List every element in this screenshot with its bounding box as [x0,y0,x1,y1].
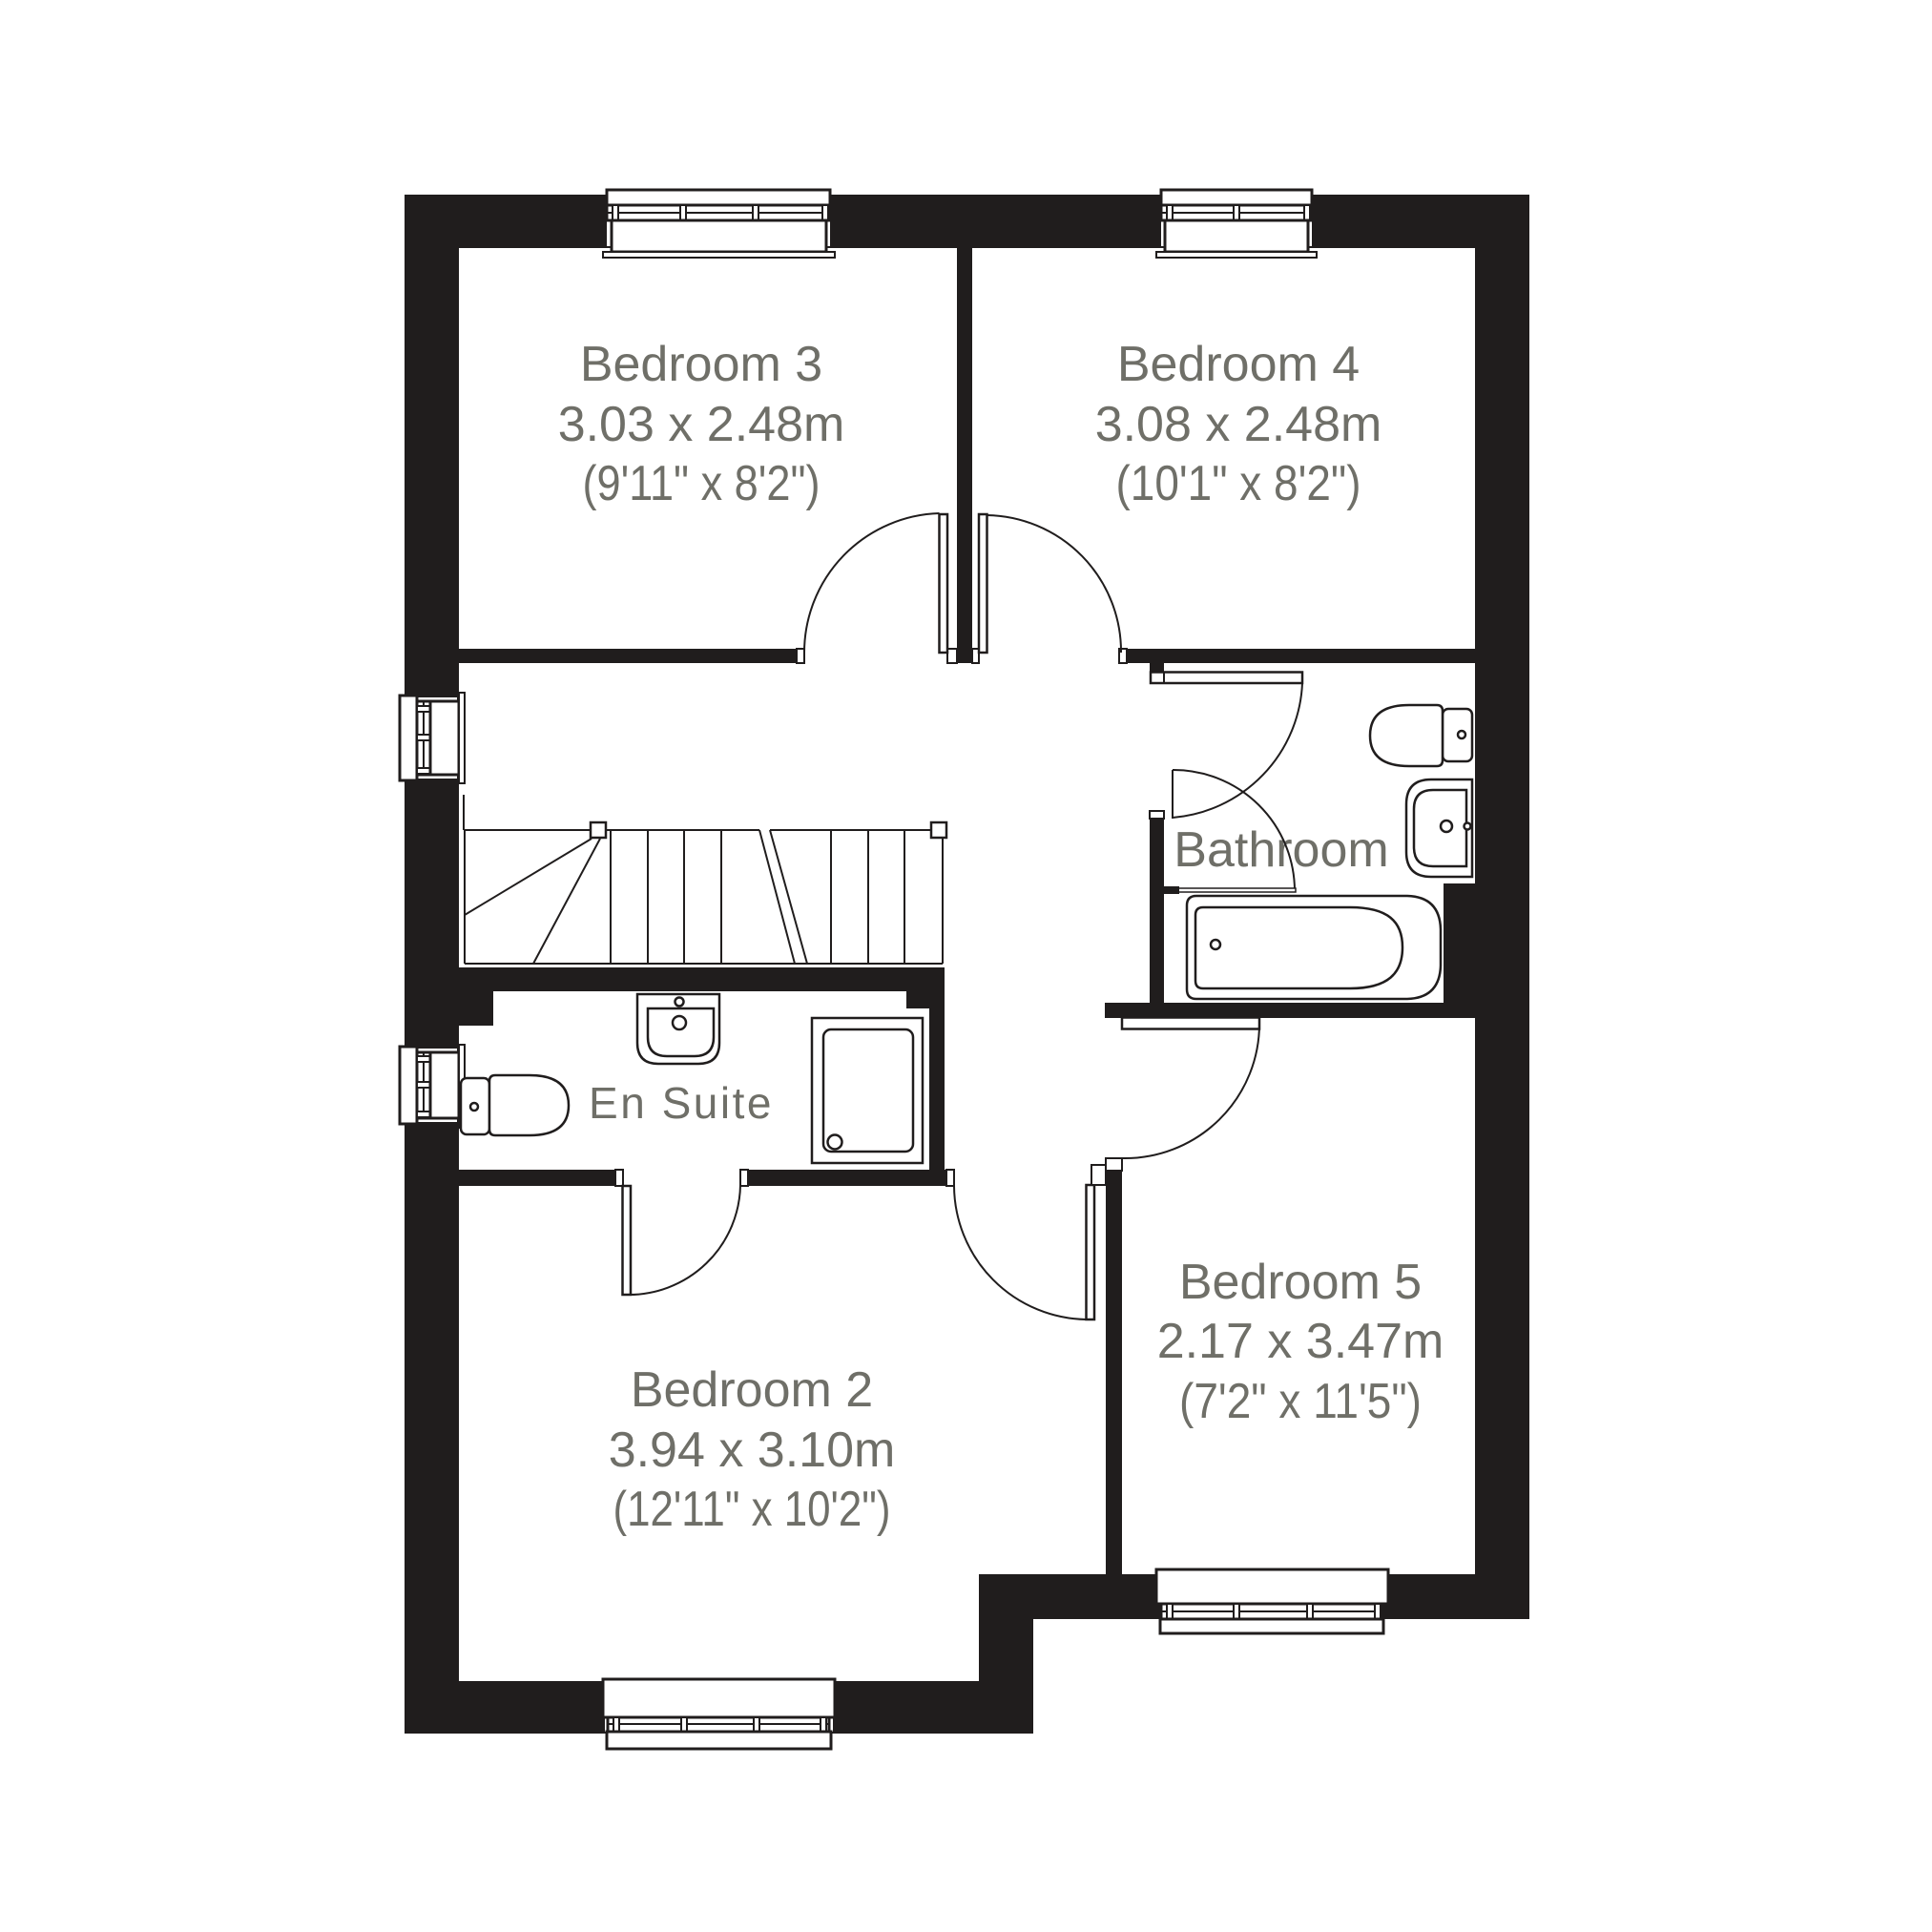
svg-text:(7'2" x 11'5"): (7'2" x 11'5") [1179,1374,1422,1429]
svg-text:3.94 x 3.10m: 3.94 x 3.10m [609,1423,896,1478]
svg-text:(9'11" x 8'2"): (9'11" x 8'2") [583,456,821,511]
svg-text:Bedroom 5: Bedroom 5 [1179,1255,1422,1310]
svg-text:2.17 x 3.47m: 2.17 x 3.47m [1157,1314,1444,1369]
svg-text:3.08 x 2.48m: 3.08 x 2.48m [1095,397,1382,452]
svg-text:Bathroom: Bathroom [1174,822,1388,878]
svg-text:Bedroom 4: Bedroom 4 [1117,337,1360,392]
svg-text:3.03 x 2.48m: 3.03 x 2.48m [558,397,845,452]
svg-text:En Suite: En Suite [589,1078,774,1128]
svg-text:Bedroom 3: Bedroom 3 [580,337,822,392]
svg-text:(12'11" x 10'2"): (12'11" x 10'2") [613,1482,891,1537]
svg-text:(10'1" x 8'2"): (10'1" x 8'2") [1116,456,1361,511]
svg-text:Bedroom 2: Bedroom 2 [631,1362,873,1418]
